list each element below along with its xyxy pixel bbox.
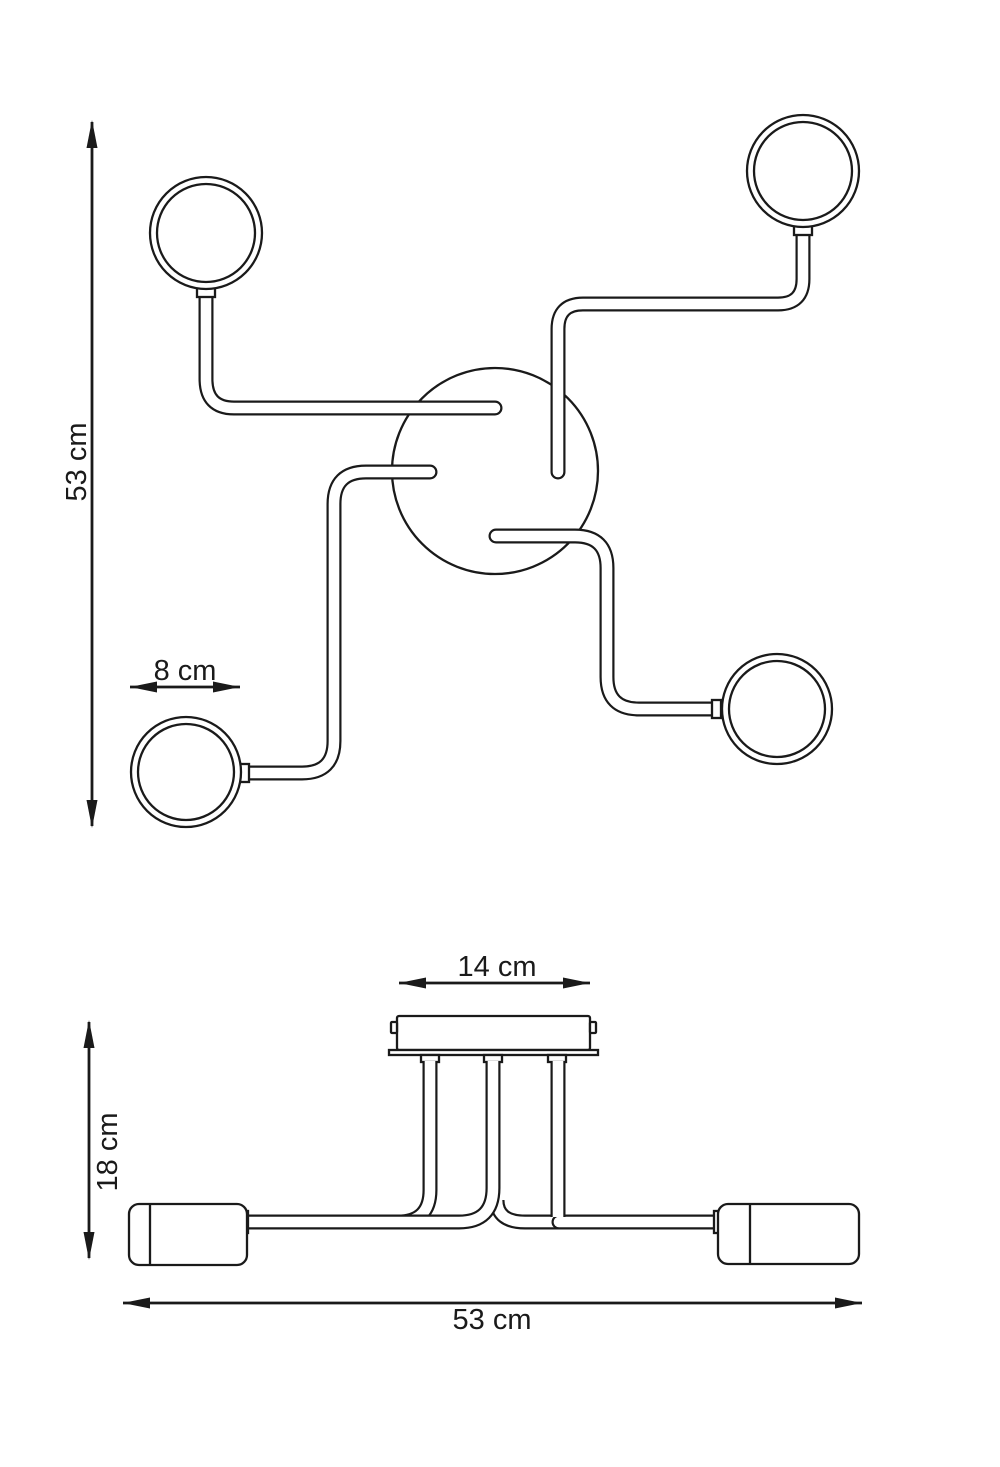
canopy-screw-right [590, 1022, 596, 1033]
shade-bottom-right [722, 654, 832, 764]
dimension-label-fixture-height: 18 cm [92, 1113, 124, 1192]
stem-left-bending-left [380, 1061, 430, 1222]
dimension-diagram: 53 cm 8 cm [0, 0, 1000, 1467]
top-view: 53 cm 8 cm [61, 115, 859, 828]
dimension-label-canopy-width: 14 cm [458, 951, 537, 983]
dimension-fixture-height: 18 cm [84, 1020, 125, 1260]
arrowhead-down [84, 1232, 95, 1260]
dimension-label-total-height: 53 cm [61, 423, 93, 502]
lamp-head-left [129, 1204, 247, 1265]
canopy-box [397, 1016, 590, 1050]
dimension-total-width: 53 cm [123, 1298, 862, 1337]
stem-collar-right [548, 1055, 566, 1062]
arm-top-right [558, 228, 803, 472]
arrowhead-up [84, 1020, 95, 1048]
arrowhead-right [563, 978, 590, 989]
side-view: 14 cm 18 cm 53 cm [84, 951, 863, 1336]
dimension-label-total-width: 53 cm [453, 1304, 532, 1336]
lamp-head-right [718, 1204, 859, 1264]
stem-collar-middle [484, 1055, 502, 1062]
dimension-canopy-width: 14 cm [399, 951, 590, 989]
arrowhead-down [87, 800, 98, 828]
lamp-technical-drawing: 53 cm 8 cm [0, 0, 1000, 1467]
arrowhead-right [213, 682, 240, 693]
dimension-top-height: 53 cm [61, 120, 98, 828]
dimension-shade-diameter: 8 cm [130, 655, 240, 693]
stem-middle-and-left-arm [246, 1061, 493, 1222]
arrowhead-left [399, 978, 426, 989]
shade-top-right [747, 115, 859, 227]
arrowhead-up [87, 120, 98, 148]
shade-top-left [150, 177, 262, 289]
arrowhead-left [123, 1298, 150, 1309]
collar-bottom-right [712, 700, 721, 718]
dimension-label-shade-diameter: 8 cm [154, 655, 217, 687]
arrowhead-right [835, 1298, 862, 1309]
shade-bottom-left [131, 717, 241, 827]
stem-collar-left [421, 1055, 439, 1062]
canopy-screw-left [391, 1022, 397, 1033]
